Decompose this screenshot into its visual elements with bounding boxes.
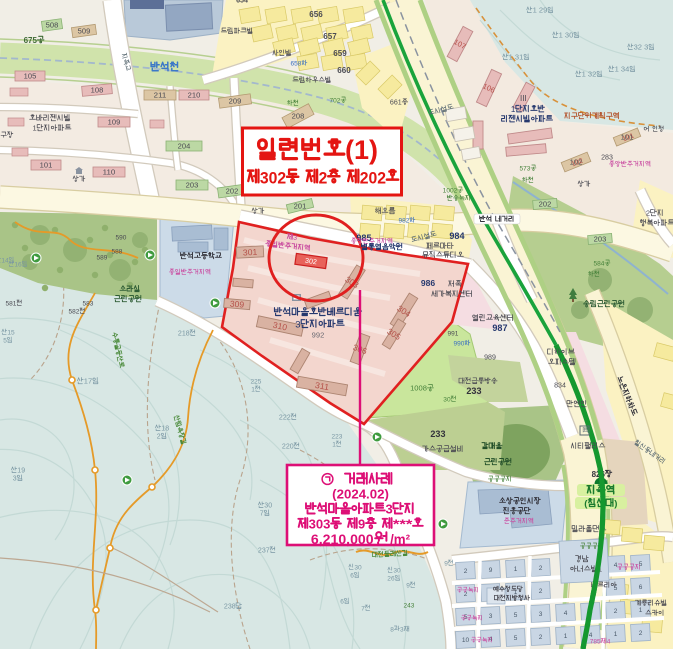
- svg-text:220: 220: [282, 444, 294, 451]
- svg-text:702: 702: [330, 97, 341, 104]
- svg-text:656: 656: [309, 10, 323, 19]
- svg-text:3: 3: [295, 319, 300, 330]
- svg-text:4: 4: [607, 638, 611, 645]
- svg-text:990: 990: [454, 340, 465, 347]
- svg-text:2: 2: [157, 434, 161, 441]
- svg-text:2: 2: [539, 634, 543, 641]
- svg-text:589: 589: [97, 254, 108, 261]
- svg-text:/m²: /m²: [390, 531, 410, 547]
- svg-text:225: 225: [251, 378, 262, 385]
- svg-text:237: 237: [258, 548, 270, 555]
- svg-text:14: 14: [1, 257, 9, 264]
- svg-text:209: 209: [229, 97, 242, 106]
- svg-text:283: 283: [601, 155, 613, 162]
- svg-text:10: 10: [462, 637, 470, 644]
- svg-text:992: 992: [312, 331, 325, 340]
- svg-text:3: 3: [386, 502, 393, 517]
- svg-text:19: 19: [17, 468, 25, 475]
- svg-text:581: 581: [6, 300, 17, 307]
- svg-text:1: 1: [514, 566, 518, 573]
- svg-text:204: 204: [178, 142, 191, 151]
- svg-text:9: 9: [444, 560, 448, 567]
- svg-text:6: 6: [340, 598, 344, 605]
- svg-text:1: 1: [564, 633, 568, 640]
- svg-text:302: 302: [260, 169, 286, 188]
- svg-text:658: 658: [291, 60, 302, 67]
- svg-text:584: 584: [594, 260, 605, 267]
- svg-text:101: 101: [40, 161, 53, 170]
- svg-text:9: 9: [406, 582, 410, 589]
- svg-text:991: 991: [448, 330, 459, 337]
- svg-text:982: 982: [399, 217, 410, 224]
- svg-text:7: 7: [361, 605, 365, 612]
- svg-text:1: 1: [614, 631, 618, 638]
- svg-text:657: 657: [323, 32, 337, 41]
- svg-text:243: 243: [404, 602, 415, 609]
- svg-text:3: 3: [400, 626, 404, 633]
- svg-text:3: 3: [489, 613, 493, 620]
- svg-text:309: 309: [229, 298, 244, 309]
- svg-text:3: 3: [13, 476, 17, 483]
- svg-text:588: 588: [112, 248, 123, 255]
- svg-text:2: 2: [539, 588, 543, 595]
- svg-text:201: 201: [294, 202, 307, 211]
- svg-text:1 30: 1 30: [559, 33, 574, 40]
- svg-text:986: 986: [421, 278, 436, 288]
- svg-text:III: III: [520, 94, 527, 103]
- svg-text:303: 303: [309, 517, 331, 532]
- svg-text:1: 1: [511, 105, 516, 114]
- svg-text:5: 5: [614, 585, 618, 592]
- svg-text:202: 202: [226, 187, 239, 196]
- svg-text:5: 5: [3, 337, 7, 344]
- svg-text:508: 508: [46, 21, 59, 30]
- svg-text:2: 2: [539, 565, 543, 572]
- svg-text:238: 238: [224, 604, 236, 611]
- svg-text:1 34: 1 34: [615, 67, 630, 74]
- svg-text:17: 17: [84, 377, 92, 386]
- svg-text:1: 1: [251, 386, 255, 393]
- svg-text:208: 208: [292, 112, 305, 121]
- svg-text:573: 573: [520, 165, 531, 172]
- svg-text:2: 2: [639, 630, 643, 637]
- svg-text:8: 8: [390, 626, 394, 633]
- svg-text:囲: 囲: [582, 427, 588, 434]
- svg-text:834: 834: [554, 383, 566, 390]
- svg-text:30: 30: [443, 396, 451, 403]
- svg-text:675: 675: [24, 36, 38, 45]
- svg-text:109: 109: [108, 118, 121, 127]
- svg-text:1 32: 1 32: [582, 72, 597, 79]
- svg-text:32 3: 32 3: [634, 45, 649, 52]
- svg-text:1: 1: [332, 441, 336, 448]
- svg-text:202: 202: [539, 200, 552, 209]
- svg-text:1 31: 1 31: [509, 55, 524, 62]
- svg-text:590: 590: [116, 234, 127, 241]
- svg-text:301: 301: [243, 247, 258, 258]
- svg-text:785: 785: [590, 638, 601, 645]
- svg-text:9: 9: [358, 517, 365, 532]
- svg-text:987: 987: [492, 323, 507, 333]
- svg-text:30: 30: [393, 567, 401, 574]
- svg-text:582: 582: [69, 308, 80, 315]
- svg-text:6,210,000: 6,210,000: [311, 531, 374, 547]
- svg-text:989: 989: [484, 355, 496, 362]
- svg-text:223: 223: [332, 433, 343, 440]
- svg-text:659: 659: [333, 49, 347, 58]
- svg-text:2: 2: [319, 169, 328, 188]
- svg-text:108: 108: [91, 86, 104, 95]
- svg-text:1008: 1008: [410, 384, 427, 393]
- svg-text:984: 984: [449, 231, 464, 241]
- svg-text:26: 26: [387, 575, 395, 582]
- svg-text:1: 1: [639, 607, 643, 614]
- svg-text:15: 15: [7, 329, 15, 336]
- svg-text:(1): (1): [345, 135, 378, 165]
- svg-text:5: 5: [514, 612, 518, 619]
- svg-text:210: 210: [188, 91, 201, 100]
- svg-text:222: 222: [279, 415, 291, 422]
- svg-text:***: ***: [393, 517, 414, 532]
- svg-text:583: 583: [83, 300, 94, 307]
- svg-text:7: 7: [260, 511, 264, 518]
- svg-text:110: 110: [103, 168, 116, 177]
- svg-text:2: 2: [614, 608, 618, 615]
- svg-text:654: 654: [236, 0, 248, 5]
- svg-text:203: 203: [186, 181, 199, 190]
- svg-text:105: 105: [24, 72, 37, 81]
- svg-text:18: 18: [161, 426, 169, 433]
- svg-text:(2024.02): (2024.02): [332, 487, 389, 502]
- svg-text:4: 4: [614, 562, 618, 569]
- svg-text:1 29: 1 29: [533, 8, 548, 15]
- svg-text:4: 4: [564, 610, 568, 617]
- svg-text:6: 6: [639, 584, 643, 591]
- svg-text:218: 218: [178, 331, 190, 338]
- svg-text:211: 211: [154, 91, 167, 100]
- svg-text:233: 233: [466, 386, 481, 396]
- svg-text:2: 2: [646, 209, 650, 218]
- svg-text:): ): [614, 498, 617, 509]
- svg-text:2: 2: [464, 568, 468, 575]
- svg-text:30: 30: [264, 503, 272, 510]
- svg-text:3: 3: [293, 235, 298, 242]
- svg-text:203: 203: [594, 235, 607, 244]
- svg-text:233: 233: [430, 429, 445, 439]
- svg-text:661: 661: [390, 100, 402, 107]
- svg-text:1: 1: [33, 124, 37, 133]
- svg-text:30: 30: [354, 564, 362, 571]
- svg-text:5: 5: [514, 635, 518, 642]
- svg-text:1002: 1002: [443, 187, 458, 194]
- svg-text:6: 6: [350, 572, 354, 579]
- svg-text:3: 3: [539, 611, 543, 618]
- svg-text:660: 660: [337, 66, 351, 75]
- svg-text:16: 16: [14, 261, 22, 268]
- svg-text:9: 9: [489, 567, 493, 574]
- svg-text:202: 202: [360, 169, 386, 188]
- svg-text:509: 509: [78, 27, 91, 36]
